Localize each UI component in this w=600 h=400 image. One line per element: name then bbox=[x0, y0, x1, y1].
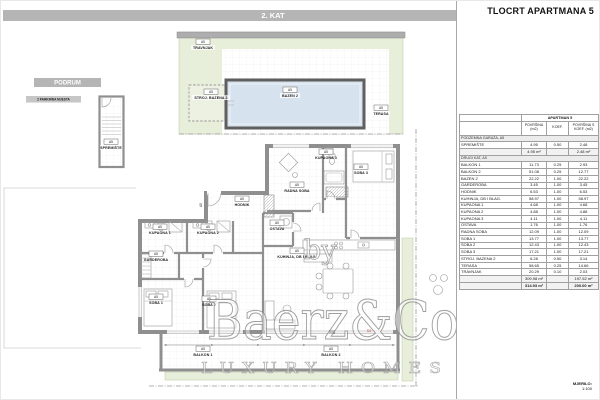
page-title: TLOCRT APARTMANA 5 bbox=[459, 6, 594, 16]
subtotal-area: 309.98 m² bbox=[522, 276, 547, 283]
area-koef-cell: 1.76 bbox=[569, 222, 599, 229]
area-koef-cell: 3.14 bbox=[569, 256, 599, 263]
table-row: SOBA 1 13.77 1.00 13.77 bbox=[460, 236, 599, 243]
room-name-cell: SOBA 2 bbox=[460, 242, 522, 249]
panel-divider bbox=[456, 1, 457, 400]
banner-2kat-label: 2. KAT bbox=[261, 11, 285, 20]
table-row: BALKON 1 11.73 0.25 2.93 bbox=[460, 162, 599, 169]
area-cell: 6.28 bbox=[522, 256, 547, 263]
banner-podrum-label: PODRUM bbox=[54, 81, 81, 87]
koef-cell: 0.25 bbox=[547, 162, 569, 169]
room-name-cell: BALKON 1 bbox=[460, 162, 522, 169]
koef-cell: 1.00 bbox=[547, 215, 569, 222]
area-koef-cell: 4.68 bbox=[569, 202, 599, 209]
area-table: APARTMAN 5 POVRŠINA (m2) KOEF. POVRŠINA … bbox=[459, 114, 599, 290]
table-row: TERASA 58.65 0.25 14.66 bbox=[460, 262, 599, 269]
area-cell: 4.68 bbox=[522, 202, 547, 209]
watermark-brand: Baerz&Co bbox=[207, 289, 459, 352]
area-cell: 11.73 bbox=[522, 162, 547, 169]
room-name-cell: GARDEROBA bbox=[460, 182, 522, 189]
svg-text:A5: A5 bbox=[324, 150, 328, 154]
svg-text:GARDEROBA: GARDEROBA bbox=[144, 258, 169, 262]
total-area-koef: 200.00 m² bbox=[569, 282, 599, 289]
koef-cell: 1.00 bbox=[547, 242, 569, 249]
koef-cell: 1.00 bbox=[547, 209, 569, 216]
room-name-cell: RADNA SOBA bbox=[460, 229, 522, 236]
area-koef-cell: 12.77 bbox=[569, 169, 599, 176]
svg-text:TERASA: TERASA bbox=[373, 112, 389, 116]
room-name-cell: SPREMIŠTE bbox=[460, 142, 522, 149]
area-koef-cell: 2.03 bbox=[569, 269, 599, 276]
area-cell: 17.21 bbox=[522, 249, 547, 256]
table-row: GARDEROBA 3.45 1.00 3.45 bbox=[460, 182, 599, 189]
section-name: DRUGI KAT, A5 bbox=[460, 155, 599, 162]
svg-text:A5: A5 bbox=[158, 225, 162, 229]
koef-cell: 0.50 bbox=[547, 142, 569, 149]
table-total-row: 314.93 m² 200.00 m² bbox=[460, 282, 599, 289]
section-name: PODZEMNA GARAŽA, A5 bbox=[460, 135, 599, 142]
table-row: APARTMAN 5 bbox=[460, 115, 599, 122]
room-name-cell: SOBA 1 bbox=[460, 236, 522, 243]
svg-text:A5: A5 bbox=[275, 221, 279, 225]
svg-text:OSTAVA: OSTAVA bbox=[270, 227, 285, 231]
area-cell: 1.76 bbox=[522, 222, 547, 229]
area-cell: 3.45 bbox=[522, 182, 547, 189]
room-label-soba1: A5SOBA 1 bbox=[149, 294, 163, 305]
table-row: OSTAVA 1.76 1.00 1.76 bbox=[460, 222, 599, 229]
table-row: HODNIK 6.53 1.00 6.53 bbox=[460, 189, 599, 196]
svg-text:RADNA SOBA: RADNA SOBA bbox=[284, 189, 310, 193]
table-row: POVRŠINA (m2) KOEF. POVRŠINA S KOEF. (m2… bbox=[460, 121, 599, 135]
svg-text:A5: A5 bbox=[209, 90, 213, 94]
koef-cell: 1.00 bbox=[547, 202, 569, 209]
area-cell: 4.88 bbox=[522, 209, 547, 216]
table-row: KUPAONA 1 4.68 1.00 4.68 bbox=[460, 202, 599, 209]
room-name-cell: TRAVNJAK bbox=[460, 269, 522, 276]
area-cell: 4.95 bbox=[522, 142, 547, 149]
svg-text:SPREMIŠTE: SPREMIŠTE bbox=[100, 145, 122, 150]
room-label-terasa: A5TERASA bbox=[372, 105, 390, 116]
svg-text:STROJ. BAZENA 2: STROJ. BAZENA 2 bbox=[194, 96, 227, 100]
svg-text:SOBA 1: SOBA 1 bbox=[149, 301, 163, 305]
svg-text:A5: A5 bbox=[288, 88, 292, 92]
koef-cell: 1.00 bbox=[547, 189, 569, 196]
subtotal-area-koef: 197.52 m² bbox=[569, 276, 599, 283]
area-koef-cell: 4.11 bbox=[569, 215, 599, 222]
area-koef-cell: 17.21 bbox=[569, 249, 599, 256]
room-label-soba3: A5SOBA 3 bbox=[354, 164, 368, 175]
basement-plan: PODRUM 2 PARKIRNA MJESTA bbox=[26, 78, 124, 167]
svg-text:A5: A5 bbox=[295, 249, 299, 253]
svg-text:A5: A5 bbox=[359, 165, 363, 169]
entry-door-tag: A5 bbox=[199, 203, 203, 207]
table-subtotal-row: 4.95 m² 2.48 m² bbox=[460, 149, 599, 156]
storage-room bbox=[100, 97, 124, 168]
area-cell: 13.77 bbox=[522, 236, 547, 243]
svg-text:A5: A5 bbox=[295, 183, 299, 187]
room-name-cell: KUPAONA 2 bbox=[460, 209, 522, 216]
col-header-koef: KOEF. bbox=[547, 121, 569, 135]
watermark-by: by bbox=[304, 235, 337, 266]
koef-cell: 1.00 bbox=[547, 229, 569, 236]
area-cell: 12.09 bbox=[522, 229, 547, 236]
table-row: SOBA 2 12.43 1.00 12.43 bbox=[460, 242, 599, 249]
table-row: KUHINJA, DB I BLAG. 58.97 1.00 58.97 bbox=[460, 195, 599, 202]
neighbour-outline bbox=[4, 188, 141, 348]
koef-cell: 1.00 bbox=[547, 236, 569, 243]
table-section-row: DRUGI KAT, A5 bbox=[460, 155, 599, 162]
area-koef-cell: 12.09 bbox=[569, 229, 599, 236]
area-cell: 6.53 bbox=[522, 189, 547, 196]
svg-text:BAZEN 2: BAZEN 2 bbox=[282, 94, 298, 98]
subtotal-area-koef: 2.48 m² bbox=[569, 149, 599, 156]
room-name-cell: BALKON 2 bbox=[460, 169, 522, 176]
koef-cell: 0.50 bbox=[547, 256, 569, 263]
svg-text:A5: A5 bbox=[154, 295, 158, 299]
table-section-row: PODZEMNA GARAŽA, A5 bbox=[460, 135, 599, 142]
banner-2kat: 2. KAT bbox=[3, 10, 456, 21]
area-koef-cell: 4.88 bbox=[569, 209, 599, 216]
svg-text:A5: A5 bbox=[201, 347, 205, 351]
koef-cell: 1.00 bbox=[547, 195, 569, 202]
area-koef-cell: 6.53 bbox=[569, 189, 599, 196]
koef-cell: 1.00 bbox=[547, 249, 569, 256]
table-row: STROJ. BAZENA 2 6.28 0.50 3.14 bbox=[460, 256, 599, 263]
scale-block: MJERILO: 1:100 bbox=[573, 381, 592, 392]
svg-text:A5: A5 bbox=[240, 197, 244, 201]
parking-label: 2 PARKIRNA MJESTA bbox=[37, 98, 70, 102]
koef-cell: 1.00 bbox=[547, 175, 569, 182]
shaft-hatch-1 bbox=[264, 195, 274, 217]
room-name-cell: SOBA 3 bbox=[460, 249, 522, 256]
svg-text:A5: A5 bbox=[154, 252, 158, 256]
svg-text:KUPAONA 3: KUPAONA 3 bbox=[315, 156, 337, 160]
svg-text:A5: A5 bbox=[201, 40, 205, 44]
koef-cell: 1.00 bbox=[547, 222, 569, 229]
koef-cell: 0.25 bbox=[547, 262, 569, 269]
area-cell: 58.65 bbox=[522, 262, 547, 269]
svg-text:KUPAONA 2: KUPAONA 2 bbox=[197, 231, 219, 235]
table-apartment-header: APARTMAN 5 bbox=[522, 115, 599, 122]
svg-text:A5: A5 bbox=[379, 106, 383, 110]
svg-text:TRAVNJAK: TRAVNJAK bbox=[193, 46, 213, 50]
room-name-cell: STROJ. BAZENA 2 bbox=[460, 256, 522, 263]
area-koef-cell: 22.22 bbox=[569, 175, 599, 182]
watermark-tagline: LUXURY HOMES bbox=[201, 359, 449, 377]
room-name-cell: KUPAONA 1 bbox=[460, 202, 522, 209]
table-subtotal-row: 309.98 m² 197.52 m² bbox=[460, 276, 599, 283]
area-cell: 20.29 bbox=[522, 269, 547, 276]
table-row: KUPAONA 3 4.11 1.00 4.11 bbox=[460, 215, 599, 222]
svg-text:A5: A5 bbox=[206, 225, 210, 229]
table-row: TRAVNJAK 20.29 0.10 2.03 bbox=[460, 269, 599, 276]
table-row: KUPAONA 2 4.88 1.00 4.88 bbox=[460, 209, 599, 216]
area-cell: 51.08 bbox=[522, 169, 547, 176]
area-koef-cell: 14.66 bbox=[569, 262, 599, 269]
col-header-area: POVRŠINA (m2) bbox=[522, 121, 547, 135]
svg-text:BALKON 2: BALKON 2 bbox=[321, 353, 340, 357]
table-row: BAZEN 2 22.22 1.00 22.22 bbox=[460, 175, 599, 182]
area-cell: 4.11 bbox=[522, 215, 547, 222]
col-header-area-koef: POVRŠINA S KOEF. (m2) bbox=[569, 121, 599, 135]
scale-value: 1:100 bbox=[573, 386, 592, 391]
room-name-cell: OSTAVA bbox=[460, 222, 522, 229]
room-name-cell: KUHINJA, DB I BLAG. bbox=[460, 195, 522, 202]
area-koef-cell: 13.77 bbox=[569, 236, 599, 243]
shaft-hatch-2 bbox=[326, 187, 348, 197]
room-name-cell: HODNIK bbox=[460, 189, 522, 196]
room-label-ostava: A5OSTAVA bbox=[270, 220, 285, 231]
svg-text:SOBA 3: SOBA 3 bbox=[354, 171, 368, 175]
table-row: SPREMIŠTE 4.95 0.50 2.48 bbox=[460, 142, 599, 149]
table-row: SOBA 3 17.21 1.00 17.21 bbox=[460, 249, 599, 256]
floor-plan-sheet: 2. KAT PODRUM 2 PARKIRNA MJESTA bbox=[0, 0, 600, 400]
room-label-bazen: A5BAZEN 2 bbox=[280, 87, 300, 98]
area-koef-cell: 12.43 bbox=[569, 242, 599, 249]
table-row: RADNA SOBA 12.09 1.00 12.09 bbox=[460, 229, 599, 236]
svg-text:BALKON 1: BALKON 1 bbox=[193, 353, 212, 357]
total-area: 314.93 m² bbox=[522, 282, 547, 289]
svg-text:A5: A5 bbox=[109, 140, 113, 144]
koef-cell: 0.10 bbox=[547, 269, 569, 276]
koef-cell: 0.25 bbox=[547, 169, 569, 176]
area-koef-cell: 2.48 bbox=[569, 142, 599, 149]
area-cell: 22.22 bbox=[522, 175, 547, 182]
svg-text:KUPAONA 1: KUPAONA 1 bbox=[149, 231, 171, 235]
room-name-cell: KUPAONA 3 bbox=[460, 215, 522, 222]
room-name-cell: BAZEN 2 bbox=[460, 175, 522, 182]
area-koef-cell: 2.93 bbox=[569, 162, 599, 169]
area-cell: 12.43 bbox=[522, 242, 547, 249]
terrace-top-wall bbox=[177, 32, 405, 38]
subtotal-area: 4.95 m² bbox=[522, 149, 547, 156]
table-row: BALKON 2 51.08 0.25 12.77 bbox=[460, 169, 599, 176]
room-name-cell: TERASA bbox=[460, 262, 522, 269]
area-koef-cell: 3.45 bbox=[569, 182, 599, 189]
area-koef-cell: 58.97 bbox=[569, 195, 599, 202]
room-label-hodnik: A5HODNIK bbox=[235, 196, 250, 207]
area-cell: 58.97 bbox=[522, 195, 547, 202]
svg-text:HODNIK: HODNIK bbox=[235, 203, 250, 207]
koef-cell: 1.00 bbox=[547, 182, 569, 189]
